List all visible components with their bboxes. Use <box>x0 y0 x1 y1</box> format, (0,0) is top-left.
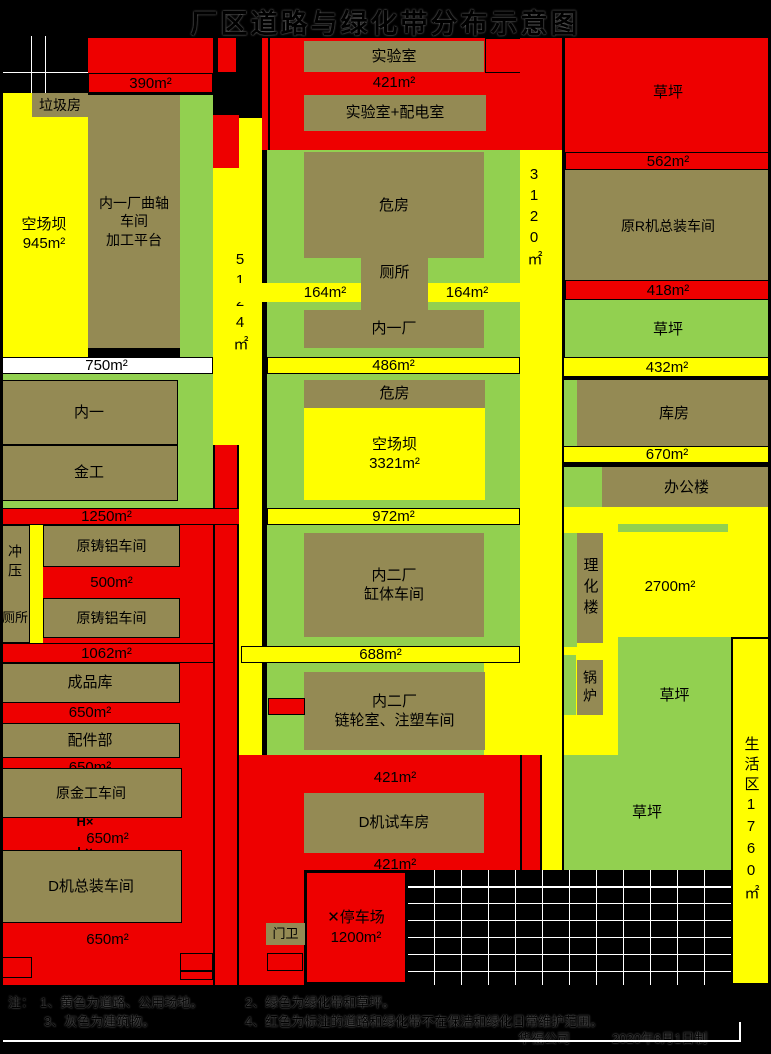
red-block-upper <box>213 115 239 168</box>
grid-line-v1 <box>31 36 32 93</box>
road-area-486: 486m² <box>267 357 520 374</box>
footer-company: 华福公司 <box>518 1028 570 1047</box>
road-area-3120: 3120㎡ <box>520 163 548 271</box>
neiyichang-label: 内一厂 <box>304 320 484 337</box>
grid-line-v2 <box>45 36 46 93</box>
note-1: 1、黄色为道路、公用场地。 <box>40 992 203 1011</box>
hx-mark: H× <box>25 815 145 829</box>
laboratory: 实验室 <box>304 41 484 72</box>
d-assembly-workshop: D机总装车间 <box>0 850 182 923</box>
red-road-strip-left <box>213 445 239 985</box>
road-area-432: 432m² <box>563 357 771 377</box>
cast-aluminum-1: 原铸铝车间 <box>43 525 180 567</box>
parking-lot: ✕停车场 1200m² <box>304 870 408 985</box>
green-strip-r2 <box>563 467 602 507</box>
former-metalwork-workshop: 原金工车间 <box>0 768 182 818</box>
outline-box-bl <box>0 957 32 978</box>
gatehouse: 门卫 <box>266 923 305 945</box>
road-area-421-top: 421m² <box>304 74 484 92</box>
parts-department: 配件部 <box>0 723 180 758</box>
page-title: 厂区道路与绿化带分布示意图 <box>0 2 771 41</box>
grid-line-h1 <box>0 72 88 73</box>
garbage-room: 垃圾房 <box>32 93 88 117</box>
divider-line <box>268 38 270 150</box>
green-strip-r3 <box>618 524 728 532</box>
crankshaft-workshop: 内一厂曲轴 车间 加工平台 <box>88 95 180 348</box>
yellow-strip-left <box>30 525 43 643</box>
cast-aluminum-2: 原铸铝车间 <box>43 598 180 638</box>
jingong-block: 金工 <box>0 445 178 501</box>
lawn-1-label: 草坪 <box>565 321 771 338</box>
outline-box-b1 <box>180 953 213 971</box>
toilet-label: 厕所 <box>361 264 428 281</box>
r-assembly-label: 原R机总装车间 <box>565 218 771 235</box>
road-area-972: 972m² <box>267 508 520 525</box>
footer-date: 2020年6月1日制 <box>612 1028 707 1047</box>
road-area-390: 390m² <box>88 73 213 93</box>
road-area-750: 750m² <box>0 357 213 374</box>
warehouse-label: 库房 <box>577 405 771 422</box>
stamping-label: 冲压 <box>2 535 28 590</box>
sprocket-injection-workshop: 内二厂 链轮室、注塑车间 <box>304 672 485 750</box>
road-area-1062: 1062m² <box>0 643 213 663</box>
condemned-2-label: 危房 <box>304 385 485 402</box>
lawn-2-label: 草坪 <box>618 687 731 704</box>
road-area-670: 670m² <box>563 446 771 463</box>
outline-box-b2 <box>180 971 213 980</box>
office-label: 办公楼 <box>602 479 771 496</box>
lawn-3-label: 草坪 <box>563 804 731 821</box>
red-column-top <box>520 38 563 150</box>
outline-box-top <box>485 38 521 73</box>
road-area-418: 418m² <box>565 280 771 300</box>
notes-prefix: 注： <box>8 992 34 1011</box>
road-164-left-label: 164m² <box>270 284 380 301</box>
neiyi-block: 内一 <box>0 380 178 445</box>
yard-2700-label: 2700m² <box>600 578 740 596</box>
boiler-room: 锅炉 <box>577 660 603 715</box>
road-164-right-label: 164m² <box>412 284 522 301</box>
footer-vline <box>739 1022 741 1042</box>
factory-layout-map: 厂区道路与绿化带分布示意图 390m² 垃圾房 空场坝 945m² 内一厂曲轴 … <box>0 0 771 1054</box>
toilet-left-label: 厕所 <box>0 610 30 627</box>
road-area-688: 688m² <box>241 646 520 663</box>
condemned-1-label: 危房 <box>304 197 484 214</box>
footer-underline <box>0 1040 740 1042</box>
finished-goods-warehouse: 成品库 <box>0 663 180 703</box>
road-area-1250: 1250m² <box>0 508 239 525</box>
green-strip-r1 <box>563 380 577 446</box>
green-strip-r4 <box>563 533 577 647</box>
divider-line-right <box>562 38 564 985</box>
note-3: 3、灰色为建筑物。 <box>44 1011 155 1030</box>
empty-yard-3321: 空场坝 3321m² <box>304 408 485 500</box>
red-zone-topleft <box>88 38 213 73</box>
yellow-strip-mid <box>484 663 520 755</box>
road-area-421a: 421m² <box>330 769 460 786</box>
d-test-room: D机试车房 <box>304 793 484 853</box>
table-top-line <box>408 886 731 888</box>
outline-box-gate <box>267 953 303 971</box>
laboratory-power-room: 实验室+配电室 <box>304 95 486 131</box>
road-area-5124: 5124㎡ <box>226 248 254 356</box>
cylinder-workshop: 内二厂 缸体车间 <box>304 533 484 637</box>
green-strip-r5 <box>563 655 576 715</box>
road-area-650d: 650m² <box>45 931 170 949</box>
red-strip-top <box>218 38 236 72</box>
red-lawn-label: 草坪 <box>565 84 771 101</box>
road-area-562: 562m² <box>565 152 771 170</box>
note-2: 2、绿色为绿化带和草坪。 <box>245 992 395 1011</box>
red-box-small <box>268 698 305 715</box>
green-strip-left <box>180 95 213 357</box>
empty-yard-label: 空场坝 945m² <box>0 212 88 256</box>
red-strip-bottom-right <box>520 755 542 870</box>
road-area-650a: 650m² <box>0 704 180 721</box>
road-area-500: 500m² <box>43 574 180 591</box>
living-area-label: 生活区1760㎡ <box>731 720 771 920</box>
